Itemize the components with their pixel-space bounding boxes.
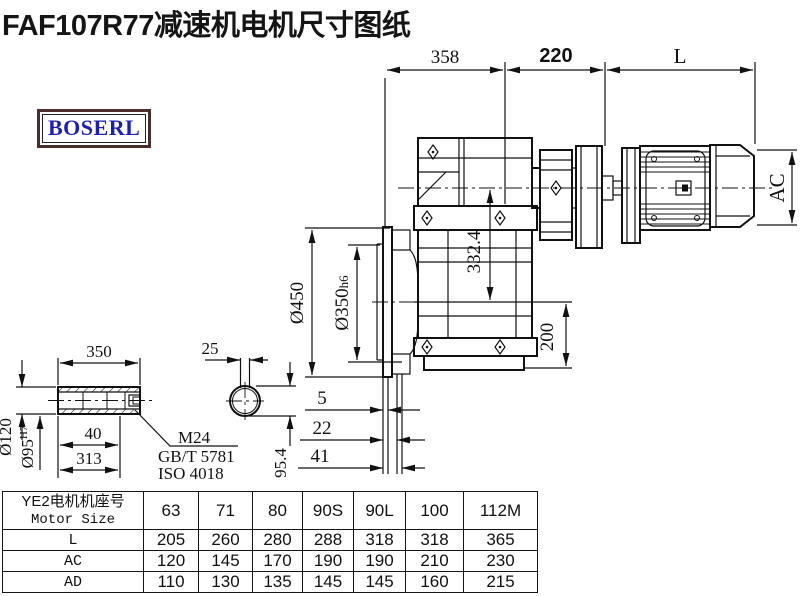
col-63: 63 — [144, 492, 199, 530]
dim-220-label: 220 — [539, 45, 572, 67]
dimension-stack: 5 22 41 — [298, 374, 425, 474]
cell-AD-90L: 145 — [354, 572, 406, 593]
col-71: 71 — [199, 492, 253, 530]
cell-AD-90S: 145 — [303, 572, 354, 593]
cell-AC-100: 210 — [406, 551, 464, 572]
thread-label: M24 — [178, 428, 211, 447]
motor-size-table: YE2电机机座号 Motor Size 63 71 80 90S 90L 100… — [2, 491, 538, 593]
col-112M: 112M — [464, 492, 538, 530]
cell-AC-80: 170 — [253, 551, 303, 572]
cell-AC-63: 120 — [144, 551, 199, 572]
drawing-page: FAF107R77减速机电机尺寸图纸 BOSERL 358 220 L — [0, 0, 800, 596]
dim-95h7-label: Ø95H7 — [18, 425, 37, 468]
col-90L: 90L — [354, 492, 406, 530]
header-en: Motor Size — [3, 511, 143, 529]
dim-41-label: 41 — [311, 446, 330, 467]
dim-358-label: 358 — [431, 47, 460, 68]
dim-313-label: 313 — [76, 449, 102, 468]
dim-200-label: 200 — [537, 323, 558, 352]
dim-AC-label: AC — [765, 173, 789, 202]
dim-332-label: 332.4 — [464, 230, 485, 273]
header-motor-size: YE2电机机座号 Motor Size — [3, 492, 144, 530]
dim-350h6-label: Ø350h6 — [332, 275, 353, 331]
dimension-top-chain: 358 220 L — [385, 44, 755, 226]
cell-L-63: 205 — [144, 530, 199, 551]
row-label-AD: AD — [3, 572, 144, 593]
table-row-L: L 205 260 280 288 318 318 365 — [3, 530, 538, 551]
dim-5-label: 5 — [317, 388, 327, 409]
dim-40-label: 40 — [85, 424, 102, 443]
motor — [622, 145, 754, 243]
cell-AC-71: 145 — [199, 551, 253, 572]
cell-L-112M: 365 — [464, 530, 538, 551]
cell-AC-90L: 190 — [354, 551, 406, 572]
cell-AD-71: 130 — [199, 572, 253, 593]
standard-iso-label: ISO 4018 — [158, 464, 224, 483]
row-label-AC: AC — [3, 551, 144, 572]
dim-350-label: 350 — [86, 342, 112, 361]
dim-954-label: 95.4 — [271, 448, 290, 478]
row-label-L: L — [3, 530, 144, 551]
table-row-AC: AC 120 145 170 190 190 210 230 — [3, 551, 538, 572]
cell-L-100: 318 — [406, 530, 464, 551]
cell-AD-100: 160 — [406, 572, 464, 593]
dim-25-label: 25 — [202, 339, 219, 358]
col-80: 80 — [253, 492, 303, 530]
cell-L-80: 280 — [253, 530, 303, 551]
table-header-row: YE2电机机座号 Motor Size 63 71 80 90S 90L 100… — [3, 492, 538, 530]
dim-450-label: Ø450 — [287, 282, 308, 324]
cell-AC-90S: 190 — [303, 551, 354, 572]
cell-L-90S: 288 — [303, 530, 354, 551]
cell-L-90L: 318 — [354, 530, 406, 551]
cell-AC-112M: 230 — [464, 551, 538, 572]
shaft-detail: 350 Ø120 Ø95H7 40 313 M24 GB/T 5781 ISO … — [0, 342, 238, 483]
dimension-AC: AC — [757, 150, 797, 225]
header-cn: YE2电机机座号 — [3, 493, 143, 511]
cell-AD-80: 135 — [253, 572, 303, 593]
col-90S: 90S — [303, 492, 354, 530]
cell-AD-112M: 215 — [464, 572, 538, 593]
dim-22-label: 22 — [313, 418, 332, 439]
cell-L-71: 260 — [199, 530, 253, 551]
dim-L-label: L — [674, 44, 687, 68]
dim-120-label: Ø120 — [0, 418, 15, 456]
col-100: 100 — [406, 492, 464, 530]
table-row-AD: AD 110 130 135 145 145 160 215 — [3, 572, 538, 593]
cell-AD-63: 110 — [144, 572, 199, 593]
input-stage — [540, 146, 622, 248]
